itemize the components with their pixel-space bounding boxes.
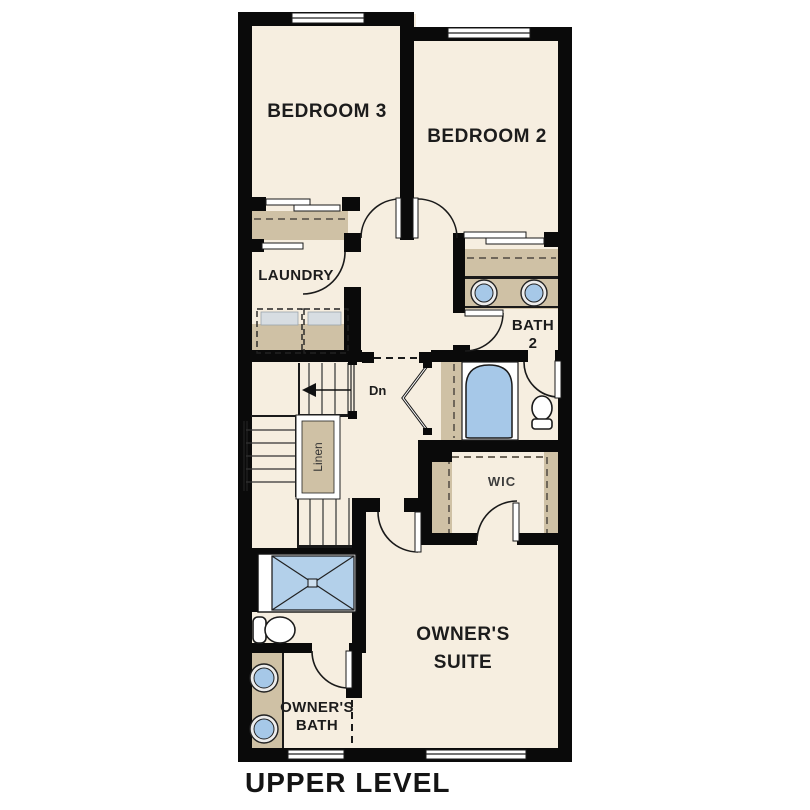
floor-plan-drawing: BEDROOM 3 BEDROOM 2 LAUNDRY BATH 2 Dn Li… (0, 0, 810, 810)
bedroom3-closet-bypass-door (266, 199, 310, 205)
bedroom3-label: BEDROOM 3 (267, 101, 387, 122)
owners-suite-window (426, 750, 526, 759)
owners-bath-label-line1: OWNER'S (280, 699, 354, 716)
bedroom2-closet-bypass-door (464, 232, 526, 238)
dryer (308, 312, 341, 325)
laundry-label: LAUNDRY (258, 267, 334, 284)
bath2-sink (521, 280, 547, 306)
plan-title: UPPER LEVEL (245, 767, 450, 798)
washer (261, 312, 298, 325)
wic-label: WIC (488, 474, 516, 489)
linen-label: Linen (311, 442, 325, 471)
owners-suite-label-line2: SUITE (434, 652, 492, 673)
bedroom2-closet-bypass-door (486, 238, 544, 244)
bedroom3-window (292, 13, 364, 23)
hall-closet-shelf (441, 362, 462, 440)
bath2-sink (471, 280, 497, 306)
owners-bath-sink (250, 664, 278, 692)
laundry-counter (252, 324, 348, 352)
bedroom2-label: BEDROOM 2 (427, 126, 547, 147)
stairs-down-label: Dn (369, 383, 386, 398)
bath2-toilet (532, 396, 552, 429)
owners-bath-label-line2: BATH (296, 717, 338, 734)
bath2-label-line2: 2 (529, 335, 538, 352)
owners-bath-window (288, 750, 344, 759)
bedroom3-closet-shelf (252, 211, 348, 240)
bedroom3-closet-bypass-door (294, 205, 340, 211)
bedroom2-closet-shelf (465, 249, 558, 277)
owners-suite-label-line1: OWNER'S (416, 624, 510, 645)
bedroom2-window (448, 28, 530, 38)
bath2-label-line1: BATH (512, 317, 554, 334)
owners-bath-sink (250, 715, 278, 743)
bathtub (462, 362, 518, 440)
floor-plan-page: BEDROOM 3 BEDROOM 2 LAUNDRY BATH 2 Dn Li… (0, 0, 810, 810)
shower (258, 554, 356, 612)
owners-toilet (253, 617, 295, 643)
